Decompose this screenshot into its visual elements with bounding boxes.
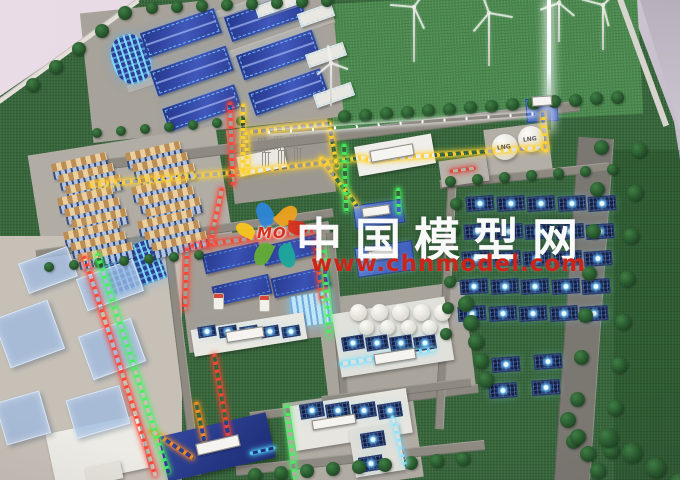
solar-panel (521, 278, 550, 295)
solar-panel (488, 305, 517, 322)
solar-panel (490, 278, 519, 295)
solar-panel (555, 223, 584, 240)
tree (430, 454, 444, 468)
tree (442, 302, 454, 314)
storage-dome (401, 320, 416, 335)
transmission-pylon (258, 138, 267, 152)
tree (526, 170, 537, 181)
tree (171, 1, 183, 13)
tree (49, 60, 63, 74)
tree (119, 256, 129, 266)
tree (69, 260, 79, 270)
tree (553, 168, 564, 179)
storage-dome (359, 320, 374, 335)
tree (169, 252, 179, 262)
transmission-pylon (278, 150, 287, 164)
tree (446, 250, 458, 262)
transmission-pylon (262, 152, 271, 166)
tree (646, 458, 666, 478)
solar-panel (532, 379, 561, 396)
tree (574, 350, 589, 365)
tree (468, 334, 484, 350)
tree (164, 122, 174, 132)
solar-panel (525, 223, 554, 240)
tree (188, 120, 198, 130)
tree (580, 446, 596, 462)
tree (248, 468, 262, 480)
building-sign (532, 95, 553, 106)
tree (26, 78, 40, 92)
tree (582, 266, 597, 281)
tree (450, 198, 462, 210)
storage-dome (371, 304, 388, 321)
tree (615, 314, 631, 330)
tree (472, 174, 483, 185)
tree (485, 100, 498, 113)
tree (326, 462, 340, 476)
tree (506, 98, 519, 111)
solar-panel (492, 250, 521, 267)
solar-panel (464, 223, 493, 240)
tree (598, 428, 618, 448)
solar-panel (557, 195, 586, 212)
tree (440, 328, 452, 340)
transmission-pylon (290, 134, 299, 148)
tree (611, 357, 627, 373)
chimney-stack (213, 293, 224, 310)
tree (359, 109, 372, 122)
tree (445, 176, 456, 187)
tree (499, 172, 510, 183)
tree (95, 24, 109, 38)
tree (443, 103, 456, 116)
tree (456, 452, 470, 466)
scale-model-photo: LNGLNG MO 中国模型网 www.chnmodel.com (0, 0, 680, 480)
wind-turbine (558, 2, 560, 42)
tree (44, 262, 54, 272)
tree (458, 296, 474, 312)
led-pipeline (396, 188, 401, 214)
storage-dome (380, 320, 395, 335)
storage-dome (422, 320, 437, 335)
tree (611, 91, 624, 104)
tree (401, 106, 414, 119)
tree (300, 464, 314, 478)
solar-panel (496, 195, 525, 212)
tree (607, 164, 618, 175)
tree (194, 250, 204, 260)
solar-panel (460, 278, 489, 295)
tree (352, 460, 366, 474)
wind-turbine (488, 12, 490, 66)
tree (570, 429, 586, 445)
tree (338, 110, 351, 123)
tree (590, 182, 605, 197)
solar-panel (584, 250, 613, 267)
solar-panel (494, 223, 523, 240)
wind-farm-grass (327, 0, 643, 130)
tree (590, 463, 606, 479)
tree (146, 2, 158, 14)
tree (560, 412, 576, 428)
tree (464, 101, 477, 114)
tree (274, 466, 288, 480)
tree (422, 104, 435, 117)
tree (140, 124, 150, 134)
wind-turbine (602, 4, 604, 50)
wind-turbine (413, 6, 415, 62)
transmission-pylon (294, 148, 303, 162)
tree (380, 107, 393, 120)
tree (578, 308, 593, 323)
chimney-stack (259, 295, 270, 312)
tree (622, 443, 642, 463)
tree (448, 224, 460, 236)
tree (623, 228, 639, 244)
solar-panel (553, 250, 582, 267)
solar-panel (549, 305, 578, 322)
tree (144, 254, 154, 264)
tree (594, 140, 609, 155)
solar-panel (489, 382, 518, 399)
tree (570, 392, 585, 407)
tree (619, 271, 635, 287)
tree (478, 372, 494, 388)
tree (444, 276, 456, 288)
tree (631, 142, 647, 158)
tree (196, 0, 208, 12)
tree (92, 128, 102, 138)
solar-panel (523, 250, 552, 267)
tree (463, 315, 479, 331)
tree (473, 353, 489, 369)
tree (580, 166, 591, 177)
solar-panel (534, 353, 563, 370)
storage-dome (413, 304, 430, 321)
solar-panel (519, 305, 548, 322)
tree (607, 400, 623, 416)
tree (118, 6, 132, 20)
tree (72, 42, 86, 56)
solar-panel (527, 195, 556, 212)
solar-panel (588, 195, 617, 212)
tree (590, 92, 603, 105)
solar-panel (466, 195, 495, 212)
tree (116, 126, 126, 136)
solar-panel (551, 278, 580, 295)
transmission-pylon (274, 136, 283, 150)
storage-dome (350, 304, 367, 321)
wind-turbine (330, 62, 332, 106)
tree (569, 94, 582, 107)
storage-dome (392, 304, 409, 321)
tree (212, 118, 222, 128)
light-beam (547, 0, 551, 130)
solar-panel (492, 356, 521, 373)
tree (586, 224, 601, 239)
tree (378, 458, 392, 472)
solar-panel (462, 250, 491, 267)
tree (627, 185, 643, 201)
